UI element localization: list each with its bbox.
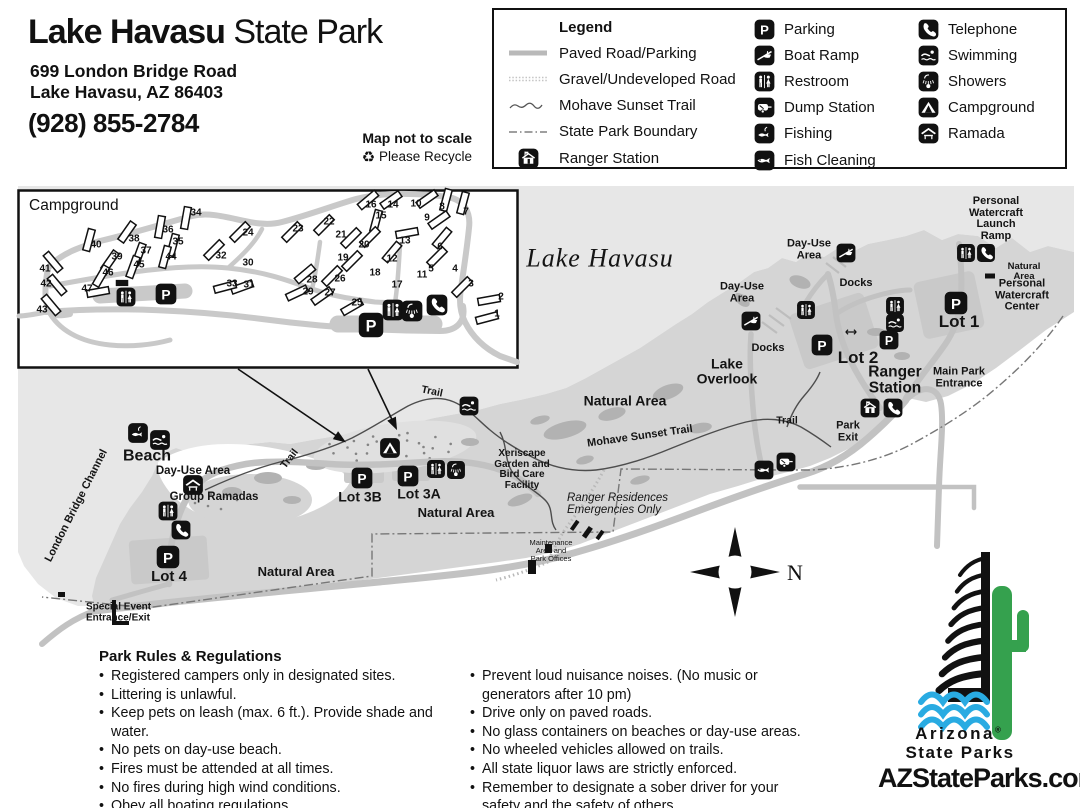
parking-icon: P bbox=[155, 283, 177, 305]
park-type: State Park bbox=[233, 13, 382, 51]
legend-row: PParking bbox=[754, 16, 916, 42]
campground-icon bbox=[918, 97, 939, 118]
legend-row: Swimming bbox=[918, 42, 1066, 68]
park-address: 699 London Bridge Road Lake Havasu, AZ 8… bbox=[30, 61, 237, 102]
inset-title: Campground bbox=[29, 197, 119, 215]
rule-item: All state liquor laws are strictly enfor… bbox=[470, 760, 818, 779]
rules-list-1: Registered campers only in designated si… bbox=[99, 667, 467, 808]
legend-label: Fish Cleaning bbox=[784, 152, 876, 169]
restroom-icon bbox=[797, 301, 816, 320]
svg-text:P: P bbox=[366, 317, 377, 335]
rule-item: No pets on day-use beach. bbox=[99, 741, 467, 760]
legend-title: Legend bbox=[559, 19, 612, 36]
legend-label: Dump Station bbox=[784, 99, 875, 116]
legend-sample-ranger-station bbox=[506, 148, 550, 169]
rule-item: Littering is unlawful. bbox=[99, 686, 467, 705]
not-to-scale-note: Map not to scale bbox=[330, 130, 472, 146]
telephone-icon bbox=[426, 294, 448, 316]
logo-brand-line1: Arizona bbox=[915, 724, 995, 743]
page-title: Lake Havasu State Park bbox=[28, 13, 382, 52]
boat-ramp-icon bbox=[836, 243, 856, 263]
ranger-station-icon bbox=[518, 148, 539, 169]
swimming-icon bbox=[918, 45, 939, 66]
map-note: Map not to scale ♻ Please Recycle bbox=[330, 130, 472, 166]
legend-label: State Park Boundary bbox=[559, 123, 697, 140]
rule-item: Drive only on paved roads. bbox=[470, 704, 818, 723]
rule-item: No glass containers on beaches or day-us… bbox=[470, 723, 818, 742]
recycle-icon: ♻ bbox=[362, 149, 375, 166]
parking-icon: P bbox=[754, 19, 775, 40]
rule-item: Fires must be attended at all times. bbox=[99, 760, 467, 779]
legend-row: Ranger Station bbox=[506, 145, 752, 171]
legend-label: Gravel/Undeveloped Road bbox=[559, 71, 736, 88]
legend-row: Dump Station bbox=[754, 95, 916, 121]
building-bar-icon bbox=[115, 276, 130, 291]
parking-icon: P bbox=[156, 545, 180, 569]
legend-row: Boat Ramp bbox=[754, 42, 916, 68]
legend-row: Paved Road/Parking bbox=[506, 40, 752, 66]
legend-label: Ramada bbox=[948, 125, 1005, 142]
svg-text:P: P bbox=[357, 471, 366, 486]
recycle-note: Please Recycle bbox=[379, 149, 472, 164]
parking-icon: P bbox=[358, 312, 384, 338]
legend-label: Fishing bbox=[784, 125, 832, 142]
legend-column-icons-1: PParkingBoat RampRestroomDump StationFis… bbox=[754, 16, 916, 173]
svg-text:P: P bbox=[885, 334, 893, 348]
svg-text:P: P bbox=[817, 338, 826, 353]
dump-station-icon bbox=[776, 452, 796, 472]
svg-text:P: P bbox=[951, 296, 961, 313]
logo-tree-icon bbox=[939, 552, 990, 702]
ramada-icon bbox=[918, 123, 939, 144]
parking-icon: P bbox=[811, 334, 833, 356]
legend-row: Fishing bbox=[754, 121, 916, 147]
legend-row: Fish Cleaning bbox=[754, 147, 916, 173]
rule-item: Obey all boating regulations. bbox=[99, 797, 467, 808]
dump-station-icon bbox=[754, 97, 775, 118]
address-line1: 699 London Bridge Road bbox=[30, 61, 237, 82]
boat-ramp-icon bbox=[754, 45, 775, 66]
legend-row: Gravel/Undeveloped Road bbox=[506, 66, 752, 92]
park-phone: (928) 855-2784 bbox=[28, 108, 199, 139]
parking-icon: P bbox=[879, 330, 899, 350]
legend: LegendPaved Road/ParkingGravel/Undevelop… bbox=[492, 8, 1067, 169]
legend-column-icons-2: TelephoneSwimmingShowersCampgroundRamada bbox=[918, 16, 1066, 147]
legend-label: Telephone bbox=[948, 21, 1017, 38]
fishing-icon bbox=[128, 423, 149, 444]
legend-row: Campground bbox=[918, 95, 1066, 121]
legend-row: Telephone bbox=[918, 16, 1066, 42]
svg-text:P: P bbox=[760, 22, 769, 37]
legend-row: Ramada bbox=[918, 121, 1066, 147]
legend-label: Campground bbox=[948, 99, 1035, 116]
legend-label: Mohave Sunset Trail bbox=[559, 97, 696, 114]
showers-icon bbox=[401, 300, 423, 322]
rule-item: Prevent loud nuisance noises. (No music … bbox=[470, 667, 818, 704]
logo-website: AZStateParks.com bbox=[878, 763, 1080, 794]
rule-item: Keep pets on leash (max. 6 ft.). Provide… bbox=[99, 704, 467, 741]
park-rules: Park Rules & Regulations Registered camp… bbox=[99, 648, 889, 665]
fish-cleaning-icon bbox=[754, 460, 774, 480]
legend-row: Restroom bbox=[754, 68, 916, 94]
legend-label: Showers bbox=[948, 73, 1006, 90]
registered-mark: ® bbox=[995, 725, 1001, 734]
telephone-icon bbox=[883, 398, 903, 418]
parking-icon: P bbox=[944, 291, 968, 315]
park-map-page: 1234567891011121314151617181920212223242… bbox=[0, 0, 1080, 808]
legend-row: Mohave Sunset Trail bbox=[506, 93, 752, 119]
svg-text:P: P bbox=[161, 287, 170, 302]
rule-item: Remember to designate a sober driver for… bbox=[470, 779, 818, 808]
restroom-icon bbox=[957, 244, 976, 263]
legend-label: Parking bbox=[784, 21, 835, 38]
legend-column-lines: LegendPaved Road/ParkingGravel/Undevelop… bbox=[506, 14, 752, 171]
legend-label: Restroom bbox=[784, 73, 849, 90]
campground-icon bbox=[380, 438, 401, 459]
legend-sample-trail bbox=[506, 101, 550, 111]
logo-brand-line2: State Parks bbox=[896, 743, 1024, 763]
swimming-icon bbox=[459, 396, 479, 416]
swimming-icon bbox=[150, 430, 171, 451]
restroom-icon bbox=[427, 460, 446, 479]
park-name: Lake Havasu bbox=[28, 13, 225, 51]
legend-row: State Park Boundary bbox=[506, 119, 752, 145]
ramada-icon bbox=[183, 475, 204, 496]
rule-item: Registered campers only in designated si… bbox=[99, 667, 467, 686]
showers-icon bbox=[447, 461, 466, 480]
legend-label: Paved Road/Parking bbox=[559, 45, 697, 62]
ranger-station-icon bbox=[860, 398, 880, 418]
address-line2: Lake Havasu, AZ 86403 bbox=[30, 82, 237, 103]
telephone-icon bbox=[918, 19, 939, 40]
rule-item: No wheeled vehicles allowed on trails. bbox=[470, 741, 818, 760]
legend-label: Swimming bbox=[948, 47, 1017, 64]
restroom-icon bbox=[754, 71, 775, 92]
boat-ramp-icon bbox=[741, 311, 761, 331]
arrow-lr-icon bbox=[844, 325, 858, 339]
showers-icon bbox=[918, 71, 939, 92]
legend-label: Boat Ramp bbox=[784, 47, 859, 64]
parking-icon: P bbox=[351, 467, 373, 489]
svg-text:P: P bbox=[163, 550, 173, 567]
restroom-icon bbox=[158, 501, 178, 521]
legend-row: Showers bbox=[918, 68, 1066, 94]
rules-title: Park Rules & Regulations bbox=[99, 648, 889, 665]
rule-item: No fires during high wind conditions. bbox=[99, 779, 467, 798]
legend-label: Ranger Station bbox=[559, 150, 659, 167]
parking-icon: P bbox=[397, 465, 419, 487]
svg-text:P: P bbox=[403, 469, 412, 484]
legend-sample-paved bbox=[506, 49, 550, 57]
fishing-icon bbox=[754, 123, 775, 144]
rules-list-2: Prevent loud nuisance noises. (No music … bbox=[470, 667, 818, 808]
telephone-icon bbox=[977, 244, 996, 263]
legend-sample-boundary bbox=[506, 128, 550, 136]
fish-cleaning-icon bbox=[754, 150, 775, 171]
logo-cactus-icon bbox=[992, 586, 1029, 740]
building-bar-icon bbox=[984, 270, 996, 282]
legend-sample-gravel bbox=[506, 75, 550, 83]
arizona-state-parks-logo: Arizona® State Parks AZStateParks.com bbox=[878, 532, 1080, 802]
telephone-icon bbox=[171, 520, 191, 540]
